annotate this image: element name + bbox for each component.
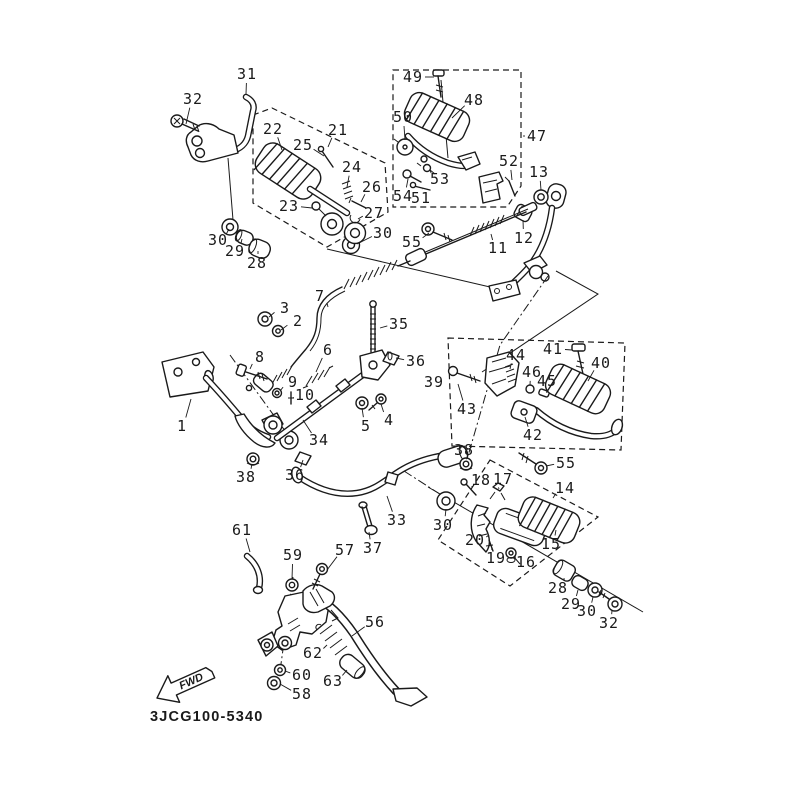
part-label-45: 45 — [537, 372, 557, 390]
nut-38-right — [460, 458, 472, 470]
leader-line-35 — [380, 326, 387, 328]
leader-line-6 — [316, 358, 322, 372]
bolt-55-lower — [519, 453, 547, 474]
leader-line-9 — [280, 387, 283, 391]
leader-line-13 — [540, 181, 541, 190]
fwd-arrow: FWD — [150, 659, 218, 710]
bolt-23 — [312, 202, 326, 216]
leader-line-41 — [565, 350, 572, 351]
part-label-35: 35 — [389, 315, 409, 333]
pin-54 — [403, 170, 421, 182]
part-label-38: 38 — [236, 468, 256, 486]
part-label-48: 48 — [464, 91, 484, 109]
washer-2 — [273, 326, 284, 337]
part-label-41: 41 — [543, 340, 563, 358]
part-label-27: 27 — [364, 204, 384, 222]
part-label-36: 36 — [285, 466, 305, 484]
part-label-10: 10 — [295, 386, 315, 404]
part-label-12: 12 — [514, 229, 534, 247]
pin-43 — [449, 367, 481, 384]
part-label-49: 49 — [403, 68, 423, 86]
part-label-40: 40 — [591, 354, 611, 372]
part-label-52: 52 — [499, 152, 519, 170]
part-label-1: 1 — [177, 417, 187, 435]
spring-6 — [303, 366, 333, 388]
part-label-62: 62 — [303, 644, 323, 662]
part-label-60: 60 — [292, 666, 312, 684]
leader-line-62 — [323, 645, 327, 649]
leader-line-8 — [250, 364, 252, 369]
part-label-14: 14 — [555, 479, 575, 497]
leader-line-23 — [301, 207, 312, 208]
leader-line-61 — [246, 539, 250, 553]
part-label-30: 30 — [433, 516, 453, 534]
part-label-2: 2 — [293, 312, 303, 330]
part-label-53: 53 — [430, 170, 450, 188]
nut-9 — [273, 389, 282, 398]
bolt-32 — [171, 115, 199, 132]
nut-3 — [258, 312, 272, 326]
part-label-32: 32 — [183, 90, 203, 108]
part-label-58: 58 — [292, 685, 312, 703]
spring-11 — [470, 215, 504, 236]
part-label-7: 7 — [315, 287, 325, 305]
bolt-37 — [359, 502, 377, 535]
part-label-38: 38 — [454, 441, 474, 459]
bolt-4 — [369, 394, 386, 410]
part-label-8: 8 — [255, 348, 265, 366]
part-label-30: 30 — [577, 602, 597, 620]
part-label-16: 16 — [516, 553, 536, 571]
part-label-36: 36 — [406, 352, 426, 370]
nut-13 — [534, 190, 548, 204]
diagram-code: 3JCG100-5340 — [150, 709, 264, 725]
part-label-30: 30 — [373, 224, 393, 242]
part-label-55: 55 — [402, 233, 422, 251]
part-label-51: 51 — [411, 189, 431, 207]
part-label-17: 17 — [493, 470, 513, 488]
fwd-arrow-label: FWD — [177, 671, 205, 692]
part-label-15: 15 — [541, 535, 561, 553]
part-label-42: 42 — [523, 426, 543, 444]
part-label-24: 24 — [342, 158, 362, 176]
part-label-37: 37 — [363, 539, 383, 557]
washer-30-lowerright — [588, 583, 602, 597]
part-label-47: 47 — [527, 127, 547, 145]
part-label-31: 31 — [237, 65, 257, 83]
part-label-6: 6 — [323, 341, 333, 359]
part-label-13: 13 — [529, 163, 549, 181]
bracket-plate-52 — [479, 172, 503, 203]
exploded-parts-diagram: FWD 3JCG100-5340 31322221252426232730292… — [0, 0, 800, 800]
nut-58 — [268, 677, 281, 690]
part-label-20: 20 — [465, 531, 485, 549]
nut-38-left — [247, 453, 259, 465]
part-label-57: 57 — [335, 541, 355, 559]
cap-50 — [394, 139, 413, 155]
washer-30-center — [437, 492, 455, 510]
part-label-28: 28 — [247, 254, 267, 272]
pin-25 — [318, 146, 333, 167]
leader-line-7 — [327, 303, 328, 307]
part-label-21: 21 — [328, 121, 348, 139]
part-label-3: 3 — [280, 299, 290, 317]
part-label-19: 19 — [486, 549, 506, 567]
part-label-29: 29 — [225, 242, 245, 260]
brace-bar-33 — [290, 444, 470, 494]
part-labels: 3132222125242623273029283049485047521353… — [177, 65, 619, 703]
part-label-5: 5 — [361, 417, 371, 435]
part-label-11: 11 — [488, 239, 508, 257]
ball-46 — [526, 385, 534, 393]
leader-line-52 — [511, 170, 512, 180]
part-label-44: 44 — [506, 346, 526, 364]
part-label-33: 33 — [387, 511, 407, 529]
nut-59 — [286, 579, 298, 591]
part-label-61: 61 — [232, 521, 252, 539]
part-label-22: 22 — [263, 120, 283, 138]
cable-adjuster-35 — [370, 301, 376, 358]
leader-line-27 — [358, 216, 363, 219]
part-label-18: 18 — [471, 471, 491, 489]
part-label-43: 43 — [457, 400, 477, 418]
washer-60 — [275, 665, 286, 676]
grommet-36-lower — [295, 452, 311, 465]
leader-line-21 — [328, 138, 332, 147]
part-label-4: 4 — [384, 411, 394, 429]
leader-line-58 — [280, 684, 291, 690]
washer-5 — [356, 397, 368, 409]
part-label-50: 50 — [393, 108, 413, 126]
leader-line-50 — [404, 126, 405, 140]
leader-line-59 — [292, 564, 293, 579]
leader-line-1 — [186, 399, 191, 418]
part-label-59: 59 — [283, 546, 303, 564]
stand-stopper-rubber-61 — [247, 556, 263, 594]
parts-diagram-page: FWD 3JCG100-5340 31322221252426232730292… — [0, 0, 800, 800]
part-label-55: 55 — [556, 454, 576, 472]
cap-42 — [510, 399, 539, 424]
leader-line-43 — [458, 384, 463, 401]
part-label-63: 63 — [323, 672, 343, 690]
part-label-23: 23 — [279, 197, 299, 215]
part-label-26: 26 — [362, 178, 382, 196]
leader-line-55 — [546, 464, 554, 466]
part-label-25: 25 — [293, 136, 313, 154]
leader-line-33 — [387, 496, 392, 512]
footrest-pad-22 — [251, 139, 365, 244]
bolt-55-upper — [422, 223, 452, 242]
part-label-32: 32 — [599, 614, 619, 632]
part-label-39: 39 — [424, 373, 444, 391]
pin-52 — [505, 177, 515, 196]
part-label-56: 56 — [365, 613, 385, 631]
part-label-34: 34 — [309, 431, 329, 449]
